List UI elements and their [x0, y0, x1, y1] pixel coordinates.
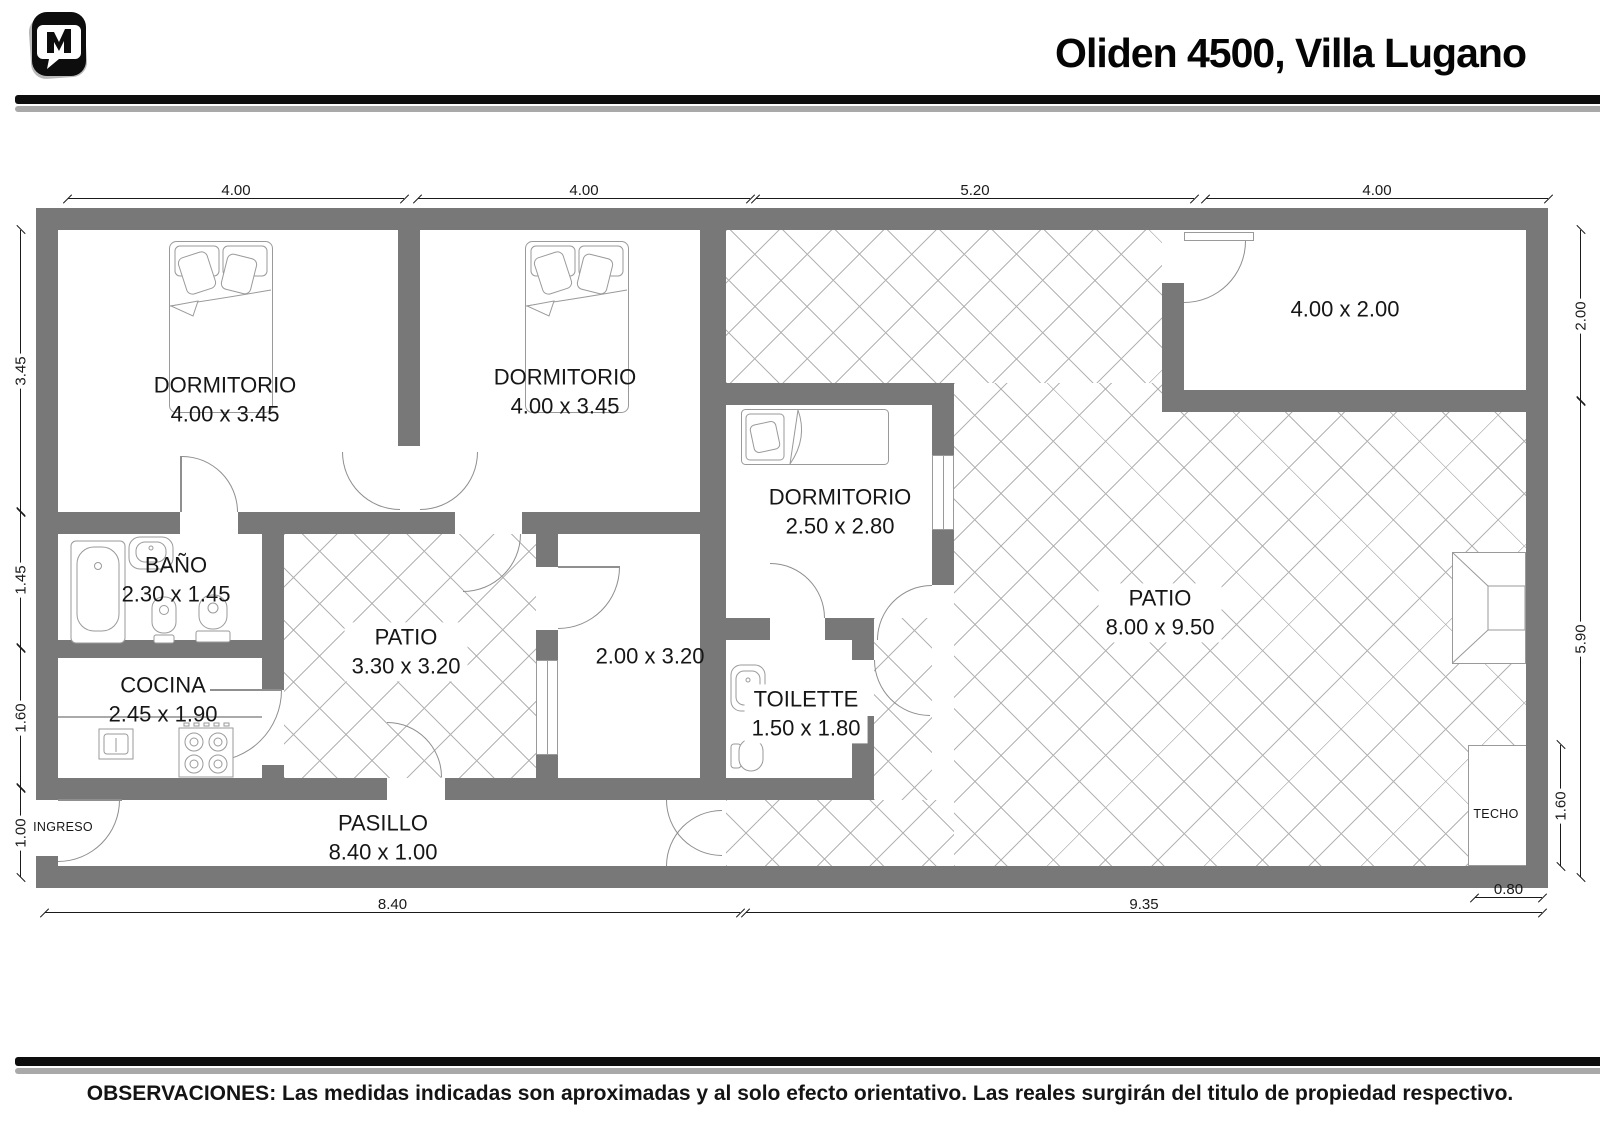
- room-label-toilette: TOILETTE 1.50 x 1.80: [745, 684, 868, 743]
- bath-door-leaf: [180, 456, 182, 512]
- wall-mid-segment: [36, 512, 180, 534]
- room-name: DORMITORIO: [769, 483, 912, 512]
- dim-left-1: 3.45: [20, 230, 21, 512]
- grill-icon: [1452, 552, 1526, 664]
- dim-value: 1.60: [1554, 788, 1569, 823]
- room-label-cocina: COCINA 2.45 x 1.90: [109, 671, 218, 728]
- dim-right-2: 5.90: [1580, 401, 1581, 877]
- room-label-dormitorio-2: DORMITORIO 4.00 x 3.45: [494, 363, 637, 420]
- wall-left: [36, 208, 58, 800]
- dim-value: 1.45: [14, 562, 29, 597]
- room-dims: 4.00 x 3.45: [154, 400, 297, 429]
- room-dims: 2.50 x 2.80: [769, 512, 912, 541]
- dim-bottom-1: 8.40: [45, 912, 740, 913]
- dim-value: 5.90: [1574, 621, 1589, 656]
- dim-value: 4.00: [218, 183, 253, 198]
- window-bedroom3: [932, 455, 954, 530]
- stove-icon: [178, 722, 234, 778]
- wall-hall-top-segment: [445, 778, 722, 800]
- room-name: TOILETTE: [752, 685, 861, 714]
- storage-door-leaf: [1184, 232, 1254, 241]
- wall-kitchen-stub: [262, 765, 284, 778]
- dim-value: 1.60: [14, 700, 29, 735]
- window-ambiente: [536, 660, 558, 755]
- room-label-ambiente: 2.00 x 3.20: [596, 643, 705, 672]
- room-name: DORMITORIO: [154, 371, 297, 400]
- dim-value: 5.20: [957, 183, 992, 198]
- room-dims: 8.00 x 9.50: [1106, 613, 1215, 642]
- room-name: TECHO: [1473, 806, 1518, 822]
- room-name: INGRESO: [33, 819, 93, 835]
- wall-room-left-segment: [536, 630, 558, 660]
- room-dims: 2.45 x 1.90: [109, 700, 218, 729]
- room-dims: 4.00 x 2.00: [1291, 296, 1400, 325]
- dim-right-3: 1.60: [1560, 745, 1561, 866]
- room-dims: 2.00 x 3.20: [596, 643, 705, 672]
- room-dims: 8.40 x 1.00: [329, 838, 438, 867]
- dim-bottom-2: 9.35: [746, 912, 1542, 913]
- room-name: PASILLO: [329, 809, 438, 838]
- dim-value: 8.40: [375, 897, 410, 912]
- wall-room-left-segment: [536, 512, 558, 567]
- header-divider-black: [15, 95, 1600, 104]
- wall-bedroom-divider: [398, 230, 420, 446]
- wall-house-patio: [700, 208, 726, 800]
- page-title: Oliden 4500, Villa Lugano: [1055, 30, 1526, 77]
- entry-door-leaf: [58, 799, 122, 801]
- dim-value: 4.00: [1359, 183, 1394, 198]
- room-dims: 4.00 x 3.45: [494, 392, 637, 421]
- patio-hatch-top-strip: [726, 230, 1162, 383]
- wall-bottom: [36, 866, 1548, 888]
- wall-bath-patio: [262, 534, 284, 690]
- room-name: DORMITORIO: [494, 363, 637, 392]
- dim-top-2: 4.00: [418, 198, 750, 199]
- wall-bedroom3-bottom-segment: [726, 618, 770, 640]
- wall-left-stub: [36, 856, 58, 866]
- dim-right-1: 2.00: [1580, 230, 1581, 401]
- observations-text: OBSERVACIONES: Las medidas indicadas son…: [0, 1082, 1600, 1106]
- floor-plan-page: Oliden 4500, Villa Lugano: [0, 0, 1600, 1127]
- room-label-techo: TECHO: [1473, 806, 1518, 822]
- dim-value: 0.80: [1491, 882, 1526, 897]
- room-name: COCINA: [109, 671, 218, 700]
- bathtub-icon: [70, 540, 126, 644]
- kitchen-door-leaf: [210, 689, 282, 691]
- wall-top: [36, 208, 1548, 230]
- kitchen-sink-icon: [98, 728, 134, 760]
- dim-value: 2.00: [1574, 298, 1589, 333]
- dim-left-2: 1.45: [20, 512, 21, 648]
- single-bed-icon: [740, 408, 890, 466]
- room-name: PATIO: [1106, 584, 1215, 613]
- dim-left-3: 1.60: [20, 648, 21, 788]
- wall-bedroom3-right-segment: [932, 530, 954, 585]
- room-dims: 3.30 x 3.20: [352, 652, 461, 681]
- wall-right: [1526, 208, 1548, 888]
- dim-top-4: 4.00: [1206, 198, 1548, 199]
- header-divider-gray: [15, 106, 1600, 112]
- wall-mid-segment: [238, 512, 455, 534]
- ambiente-door-leaf: [558, 566, 620, 568]
- bedroom3-inner-door-arc: [770, 563, 825, 618]
- wall-hall-top-segment: [36, 778, 387, 800]
- patio-hatch-main: [954, 383, 1526, 866]
- patio-hatch-bottom: [726, 800, 954, 866]
- room-label-dormitorio-3: DORMITORIO 2.50 x 2.80: [769, 483, 912, 540]
- wall-bedroom3-right-segment: [932, 383, 954, 455]
- dim-bottom-3: 0.80: [1475, 897, 1542, 898]
- dim-value: 3.45: [14, 353, 29, 388]
- room-name: PATIO: [352, 623, 461, 652]
- footer-divider-gray: [15, 1068, 1600, 1074]
- wall-bedroom3-top: [726, 383, 954, 405]
- room-label-patio: PATIO 8.00 x 9.50: [1099, 583, 1222, 642]
- room-dims: 1.50 x 1.80: [752, 714, 861, 743]
- dim-value: 4.00: [566, 183, 601, 198]
- m-bubble-logo-icon: [26, 8, 92, 82]
- room-label-patio-interno: PATIO 3.30 x 3.20: [345, 622, 468, 681]
- wall-toilette-right-segment: [852, 618, 874, 660]
- footer-divider-black: [15, 1057, 1600, 1066]
- dim-top-1: 4.00: [68, 198, 404, 199]
- dim-top-3: 5.20: [756, 198, 1194, 199]
- bedroom2-door-arc: [420, 452, 478, 510]
- room-label-deposito: 4.00 x 2.00: [1291, 296, 1400, 325]
- room-label-ingreso: INGRESO: [26, 818, 100, 836]
- room-name: BAÑO: [122, 551, 231, 580]
- bedroom1-door-arc: [342, 452, 400, 510]
- wall-bedroom3-bottom-segment: [825, 618, 852, 640]
- bath-door-arc: [182, 456, 238, 512]
- room-label-bano: BAÑO 2.30 x 1.45: [122, 551, 231, 608]
- room-label-pasillo: PASILLO 8.40 x 1.00: [329, 809, 438, 866]
- ambiente-door-arc: [558, 567, 620, 629]
- wall-toilette-bottom: [726, 778, 874, 800]
- dim-value: 9.35: [1126, 897, 1161, 912]
- bedroom3-patio-door-arc: [877, 585, 932, 640]
- dim-value: 1.00: [14, 815, 29, 850]
- wall-storage-bottom: [1162, 390, 1526, 412]
- dim-left-4: 1.00: [20, 788, 21, 877]
- room-dims: 2.30 x 1.45: [122, 580, 231, 609]
- room-label-dormitorio-1: DORMITORIO 4.00 x 3.45: [154, 371, 297, 428]
